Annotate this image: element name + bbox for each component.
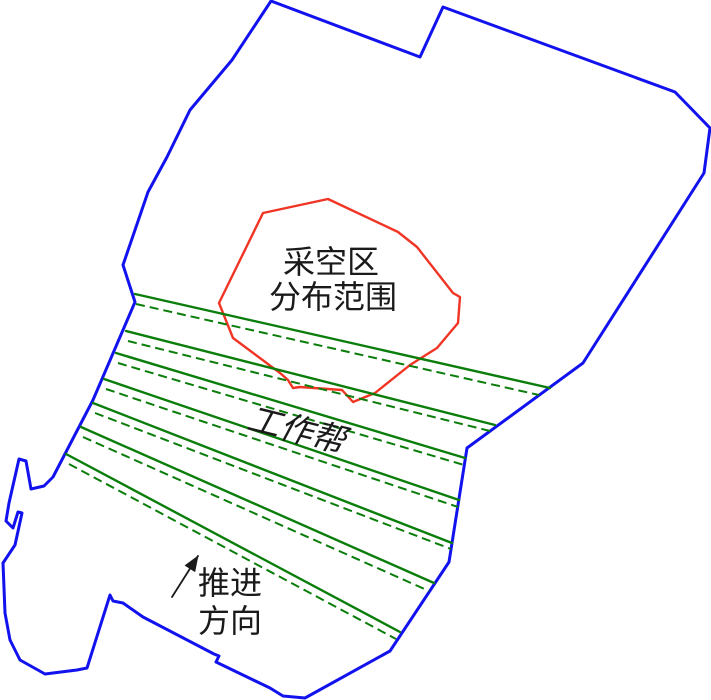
advance-direction-arrow xyxy=(172,556,198,597)
bench-6-solid-line xyxy=(81,427,434,583)
mining-plan-diagram: 采空区 分布范围 工作帮 推进 方向 xyxy=(0,0,711,700)
goaf-label-line1: 采空区 xyxy=(283,244,379,280)
advance-label-line2: 方向 xyxy=(198,603,262,639)
goaf-label-line2: 分布范围 xyxy=(269,279,397,315)
mine-boundary-polygon xyxy=(3,1,710,698)
advance-label-line1: 推进 xyxy=(198,565,262,601)
diagram-canvas: 采空区 分布范围 工作帮 推进 方向 xyxy=(0,0,711,700)
working-bench-lines-group xyxy=(66,294,550,639)
